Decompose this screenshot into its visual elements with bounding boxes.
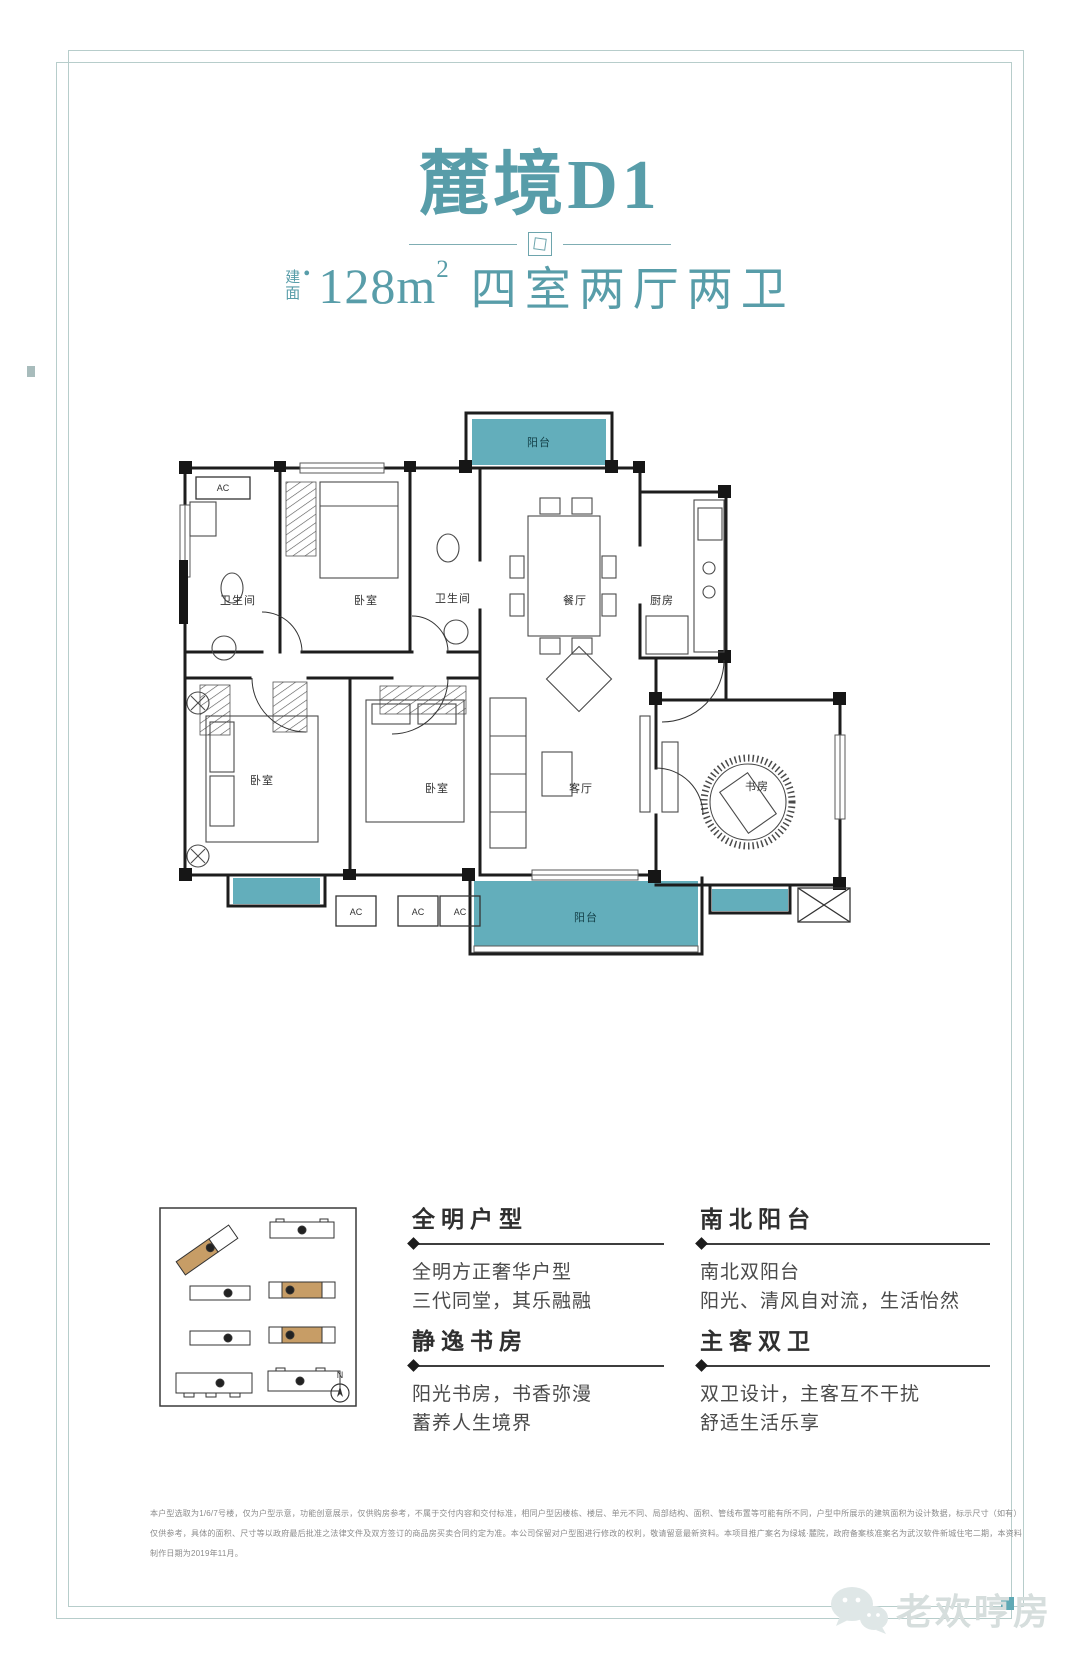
feature-line: 双卫设计，主客互不干扰 bbox=[700, 1384, 920, 1405]
subtitle-bullet: • bbox=[303, 263, 310, 286]
disclaimer: 本户型选取为1/6/7号楼，仅为户型示意，功能创意展示，仅供购房参考，不属于交付… bbox=[150, 1504, 950, 1564]
page-title: 麓境D1 bbox=[0, 128, 1080, 229]
feature-north-south-balcony: 南北阳台 南北双阳台阳光、清风自对流，生活怡然 bbox=[700, 1200, 990, 1317]
ac-label-4: AC bbox=[217, 483, 230, 493]
area-prefix-top: 建 bbox=[285, 270, 301, 287]
area-superscript: 2 bbox=[436, 256, 449, 284]
floorplan-diagram: 阳台 卫生间 卧室 卫生间 餐厅 厨房 卧室 卧室 客厅 书房 阳台 AC AC… bbox=[170, 400, 870, 985]
feature-title: 南北阳台 bbox=[700, 1200, 990, 1234]
ac-label-2: AC bbox=[412, 907, 425, 917]
label-balcony-top: 阳台 bbox=[527, 435, 551, 449]
diamond-icon bbox=[407, 1359, 420, 1372]
compass-label: N bbox=[337, 1370, 344, 1380]
feature-title: 全明户型 bbox=[412, 1200, 664, 1234]
label-balcony-bottom: 阳台 bbox=[574, 910, 598, 924]
subtitle: 建 面 • 128 m 2 四室两厅两卫 bbox=[0, 253, 1080, 319]
disclaimer-line-2: 仅供参考，具体的面积、尺寸等以政府最后批准之法律文件及双方签订的商品房买卖合同约… bbox=[150, 1524, 950, 1544]
label-bedroom-left: 卧室 bbox=[250, 773, 274, 787]
area-value: 128 bbox=[318, 257, 396, 315]
feature-body: 全明方正奢华户型三代同堂，其乐融融 bbox=[412, 1258, 664, 1317]
label-dining: 餐厅 bbox=[563, 593, 587, 607]
watermark: 老欢哼房 bbox=[826, 1580, 1052, 1638]
area-prefix-stack: 建 面 bbox=[285, 270, 301, 303]
disclaimer-line-3: 制作日期为2019年11月。 bbox=[150, 1544, 950, 1564]
siteplan-buildings bbox=[176, 1219, 340, 1397]
feature-quiet-study: 静逸书房 阳光书房，书香弥漫蓄养人生境界 bbox=[412, 1322, 664, 1439]
poster: 麓境D1 建 面 • 128 m 2 四室两厅两卫 bbox=[0, 0, 1080, 1669]
label-study: 书房 bbox=[745, 780, 769, 793]
feature-line: 三代同堂，其乐融融 bbox=[412, 1291, 592, 1312]
disclaimer-line-1: 本户型选取为1/6/7号楼，仅为户型示意，功能创意展示，仅供购房参考，不属于交付… bbox=[150, 1504, 950, 1524]
feature-line: 蓄养人生境界 bbox=[412, 1413, 532, 1434]
watermark-text: 老欢哼房 bbox=[896, 1583, 1052, 1635]
feature-body: 南北双阳台阳光、清风自对流，生活怡然 bbox=[700, 1258, 990, 1317]
feature-line: 阳光、清风自对流，生活怡然 bbox=[700, 1291, 960, 1312]
feature-divider bbox=[700, 1243, 990, 1245]
divider-line-right bbox=[563, 244, 671, 245]
feature-divider bbox=[412, 1243, 664, 1245]
feature-dual-bathrooms: 主客双卫 双卫设计，主客互不干扰舒适生活乐享 bbox=[700, 1322, 990, 1439]
divider-line-left bbox=[409, 244, 517, 245]
closets bbox=[200, 482, 466, 735]
feature-bright-layout: 全明户型 全明方正奢华户型三代同堂，其乐融融 bbox=[412, 1200, 664, 1317]
feature-divider bbox=[700, 1365, 990, 1367]
siteplan-diagram: N bbox=[152, 1198, 367, 1418]
ac-label-1: AC bbox=[350, 907, 363, 917]
label-bedroom-mid: 卧室 bbox=[425, 781, 449, 795]
room-count-text: 四室两厅两卫 bbox=[471, 253, 795, 319]
diamond-icon bbox=[695, 1359, 708, 1372]
feature-title: 静逸书房 bbox=[412, 1322, 664, 1356]
feature-line: 全明方正奢华户型 bbox=[412, 1262, 572, 1283]
area-unit: m bbox=[396, 257, 436, 315]
door-arcs bbox=[252, 612, 724, 815]
diamond-icon bbox=[695, 1237, 708, 1250]
label-living: 客厅 bbox=[569, 781, 593, 795]
area-prefix-bottom: 面 bbox=[285, 286, 301, 303]
wechat-icon bbox=[826, 1580, 892, 1638]
label-bath1: 卫生间 bbox=[220, 593, 256, 607]
diamond-icon bbox=[407, 1237, 420, 1250]
feature-body: 阳光书房，书香弥漫蓄养人生境界 bbox=[412, 1380, 664, 1439]
left-edge-mark bbox=[27, 366, 35, 377]
ac-label-3: AC bbox=[454, 907, 467, 917]
furniture bbox=[187, 482, 792, 867]
label-bath2: 卫生间 bbox=[435, 591, 471, 605]
feature-body: 双卫设计，主客互不干扰舒适生活乐享 bbox=[700, 1380, 990, 1439]
feature-line: 南北双阳台 bbox=[700, 1262, 800, 1283]
feature-line: 舒适生活乐享 bbox=[700, 1413, 820, 1434]
feature-divider bbox=[412, 1365, 664, 1367]
label-kitchen: 厨房 bbox=[650, 594, 674, 607]
label-bedroom-top: 卧室 bbox=[354, 593, 378, 607]
feature-line: 阳光书房，书香弥漫 bbox=[412, 1384, 592, 1405]
feature-title: 主客双卫 bbox=[700, 1322, 990, 1356]
